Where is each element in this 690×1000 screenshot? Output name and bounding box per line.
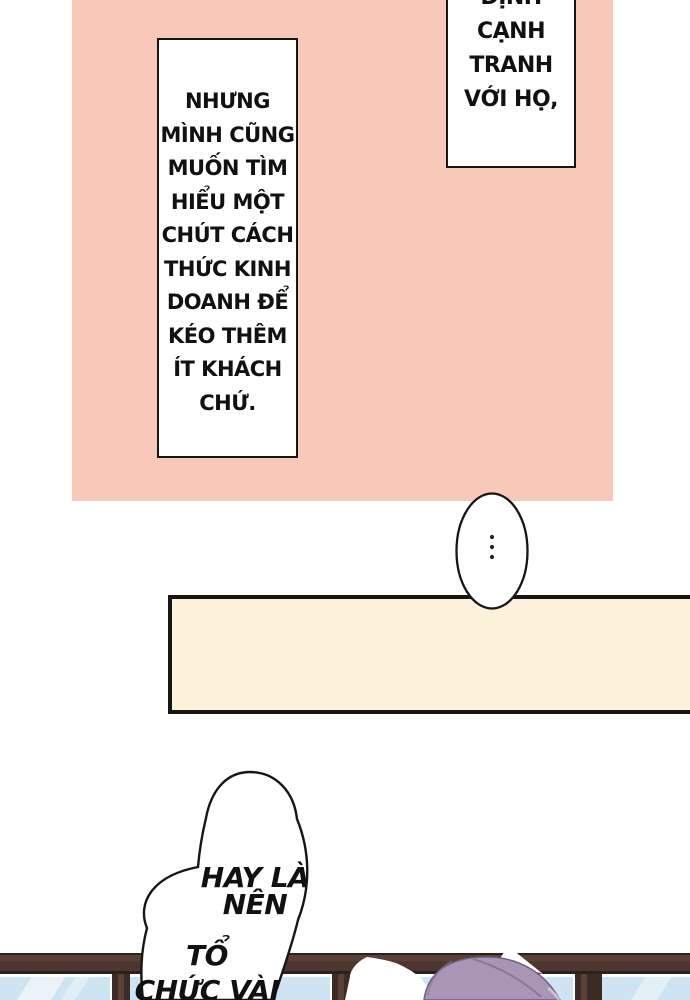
speech-text-group: HAY LÀ NÊN [185, 864, 325, 918]
speech-text-group: TỔ CHỨC VÀI [127, 938, 287, 1000]
glass-reflection [10, 974, 69, 1000]
speech-bubble-left: NHƯNG MÌNH CŨNG MUỐN TÌM HIỂU MỘT CHÚT C… [157, 38, 298, 458]
speech-line: TỔ [127, 938, 287, 973]
speech-line: MUỐN TÌM [159, 152, 296, 186]
speech-line: HAY LÀ [185, 864, 325, 891]
character-head [340, 938, 570, 1000]
glass-reflection [624, 974, 675, 1000]
speech-line: ÍT KHÁCH [159, 353, 296, 387]
caption-box [168, 595, 690, 714]
speech-line: NHƯNG [159, 85, 296, 119]
speech-line: ĐỊNH [448, 0, 574, 15]
ellipsis-bubble [453, 490, 531, 612]
ellipsis-dot [490, 535, 494, 539]
speech-line: DOANH ĐỂ [159, 286, 296, 320]
speech-line: KÉO THÊM [159, 320, 296, 354]
speech-line: HIỂU MỘT [159, 186, 296, 220]
speech-line: CHÚT CÁCH [159, 219, 296, 253]
ellipsis-dot [490, 555, 494, 559]
speech-line: TRANH [448, 49, 574, 83]
ellipsis-dot [490, 545, 494, 549]
speech-line: CHỨC VÀI [127, 973, 287, 1000]
speech-line: THỨC KINH [159, 253, 296, 287]
cat-ear-left [345, 957, 428, 1000]
speech-bubble-top-right: ĐỊNH CẠNH TRANH VỚI HỌ, [446, 0, 576, 168]
speech-line: NÊN [185, 891, 325, 918]
speech-line: MÌNH CŨNG [159, 119, 296, 153]
window-mullion [573, 974, 602, 1000]
ellipsis-bubble-outline [457, 494, 528, 609]
speech-line: CHỨ. [159, 387, 296, 421]
comic-page: NHƯNG MÌNH CŨNG MUỐN TÌM HIỂU MỘT CHÚT C… [0, 0, 690, 1000]
speech-line: VỚI HỌ, [448, 83, 574, 117]
hair-dome [424, 957, 560, 1000]
speech-line: CẠNH [448, 15, 574, 49]
